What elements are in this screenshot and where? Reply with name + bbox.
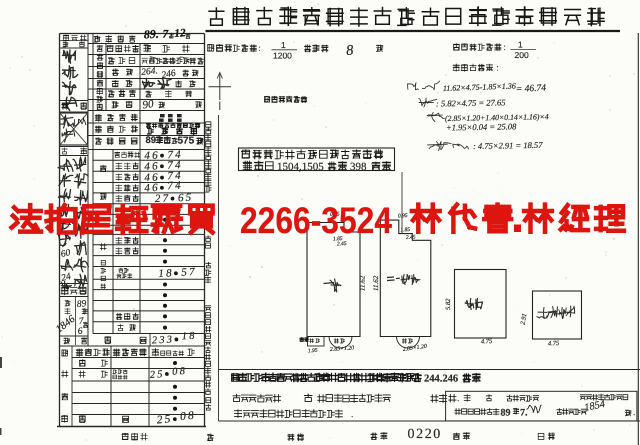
svg-text:89: 89 xyxy=(76,299,87,310)
svg-text:2.45: 2.45 xyxy=(337,241,347,248)
svg-text:.: . xyxy=(633,407,635,417)
svg-text:: 5.82×4.75 = 27.65: : 5.82×4.75 = 27.65 xyxy=(436,97,506,108)
svg-text:4.75: 4.75 xyxy=(481,338,493,346)
svg-text:= 46.74: = 46.74 xyxy=(516,83,547,95)
svg-text:0.95: 0.95 xyxy=(398,213,408,220)
svg-text:25: 25 xyxy=(156,413,173,426)
svg-text:57: 57 xyxy=(181,266,197,279)
svg-text:: 4.75×2.91 = 18.57: : 4.75×2.91 = 18.57 xyxy=(473,140,543,151)
svg-text:18: 18 xyxy=(158,267,174,280)
svg-text:65: 65 xyxy=(178,192,194,205)
svg-text:2.45: 2.45 xyxy=(406,234,416,241)
svg-text:18: 18 xyxy=(181,331,196,343)
svg-text:1200: 1200 xyxy=(273,51,292,61)
svg-text:4.75: 4.75 xyxy=(548,340,560,348)
svg-text:1.85: 1.85 xyxy=(400,227,410,234)
svg-text:1.95: 1.95 xyxy=(308,348,318,355)
svg-text:27: 27 xyxy=(155,192,171,205)
svg-text:398: 398 xyxy=(350,161,367,173)
svg-text:1: 1 xyxy=(518,40,523,50)
svg-text:89.: 89. xyxy=(143,27,159,42)
svg-text:.: . xyxy=(457,393,459,403)
svg-text:1504,1505: 1504,1505 xyxy=(277,161,324,173)
svg-text:2266-3524: 2266-3524 xyxy=(240,200,392,241)
svg-text:08: 08 xyxy=(180,410,197,423)
svg-text:200: 200 xyxy=(515,50,529,60)
svg-text:244.246: 244.246 xyxy=(424,374,458,385)
svg-text:0220: 0220 xyxy=(408,427,442,442)
svg-text:5.82: 5.82 xyxy=(445,298,452,310)
svg-text:.: . xyxy=(351,409,353,419)
svg-text:08: 08 xyxy=(172,366,188,378)
svg-text:25: 25 xyxy=(149,369,165,381)
svg-text:11.62: 11.62 xyxy=(359,275,367,291)
svg-text:11.62: 11.62 xyxy=(372,275,380,291)
svg-text:12: 12 xyxy=(174,27,187,40)
svg-text:+1.95×0.04 = 25.08: +1.95×0.04 = 25.08 xyxy=(446,121,517,132)
svg-text:90: 90 xyxy=(142,98,155,111)
svg-text:575: 575 xyxy=(178,136,195,147)
svg-text:89: 89 xyxy=(146,135,157,146)
svg-text::: : xyxy=(259,44,261,53)
svg-text:264.: 264. xyxy=(141,66,159,78)
svg-text::: : xyxy=(504,43,506,52)
svg-text:74: 74 xyxy=(167,179,183,192)
svg-text:1: 1 xyxy=(281,40,286,50)
svg-text:233: 233 xyxy=(152,334,175,346)
svg-text::: : xyxy=(497,64,499,73)
